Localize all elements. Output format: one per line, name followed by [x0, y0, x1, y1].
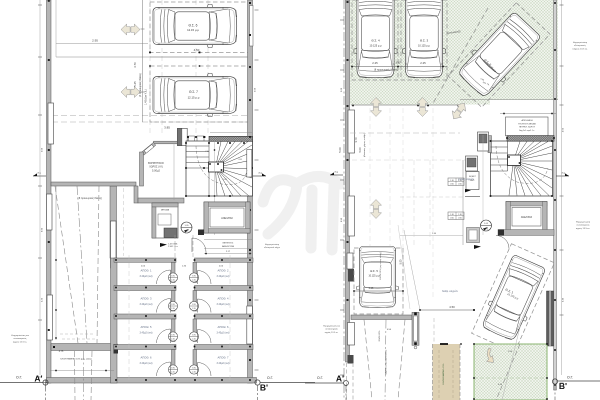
svg-text:ΠΕΤΡΕΛ. ΧΩΡΟΥ: ΠΕΤΡΕΛ. ΧΩΡΟΥ	[519, 127, 536, 129]
svg-text:3.95: 3.95	[171, 304, 175, 306]
svg-text:3.40μ2 (net): 3.40μ2 (net)	[140, 332, 153, 335]
svg-text:5.00: 5.00	[400, 259, 403, 264]
svg-text:3.95: 3.95	[171, 335, 175, 337]
svg-text:3.95: 3.95	[192, 368, 196, 370]
svg-text:0.26: 0.26	[223, 179, 226, 181]
svg-text:12.15 μ.μ: 12.15 μ.μ	[187, 28, 199, 32]
svg-text:2.20: 2.20	[171, 308, 175, 310]
svg-text:3.70: 3.70	[133, 62, 137, 68]
svg-text:2.25: 2.25	[369, 287, 374, 290]
svg-text:4.50: 4.50	[449, 305, 455, 309]
svg-text:(μεγίστη επιτρεπόμενη κλίση): (μεγίστη επιτρεπόμενη κλίση)	[385, 349, 388, 374]
svg-text:2.10/1.74 π.: 2.10/1.74 π.	[168, 246, 179, 248]
svg-text:εξωτερικούς: εξωτερικούς	[574, 44, 586, 47]
svg-text:τοίχους 13.5 εκ.: τοίχους 13.5 εκ.	[572, 47, 588, 50]
svg-text:3.85: 3.85	[164, 126, 170, 130]
svg-text:αρμός 13.5 εκ.: αρμός 13.5 εκ.	[325, 331, 339, 334]
svg-text:Θερμομόνωση: Θερμομόνωση	[265, 243, 280, 246]
svg-text:Θ.Σ. 5: Θ.Σ. 5	[370, 269, 378, 273]
svg-text:Θ.Σ. 4: Θ.Σ. 4	[371, 39, 380, 43]
svg-text:3.40μ2 (net): 3.40μ2 (net)	[217, 275, 230, 278]
svg-text:2.20: 2.20	[171, 280, 175, 282]
svg-text:ΑΠΟΘΗΚΗ: ΑΠΟΘΗΚΗ	[521, 119, 532, 122]
svg-text:ΚΛΙΣΗ 22%: ΚΛΙΣΗ 22%	[379, 331, 381, 342]
svg-text:ΑΠΟΘ. 7: ΑΠΟΘ. 7	[218, 356, 229, 360]
svg-text:ΑΝΕΛ/ΡΑΣ: ΑΝΕΛ/ΡΑΣ	[221, 217, 233, 220]
svg-text:3.83: 3.83	[396, 62, 401, 65]
svg-text:B': B'	[559, 381, 567, 391]
svg-text:3.95: 3.95	[192, 276, 196, 278]
svg-text:ΑΠΟΘ. 6: ΑΠΟΘ. 6	[218, 325, 229, 329]
svg-text:2.20: 2.20	[171, 339, 175, 341]
svg-text:ΚΛΙΣΗ ΡΑΜΠΑΣ 4-5%: ΚΛΙΣΗ ΡΑΜΠΑΣ 4-5%	[442, 364, 445, 385]
svg-text:1.30: 1.30	[450, 180, 454, 182]
svg-text:Ο.Γ.: Ο.Γ.	[567, 376, 573, 380]
svg-text:2.20: 2.20	[192, 339, 196, 341]
svg-text:ΜΗΧ/ΜΑ: ΜΗΧ/ΜΑ	[161, 209, 170, 212]
svg-text:2.20: 2.20	[192, 280, 196, 282]
svg-text:0.60: 0.60	[458, 184, 462, 186]
svg-text:3.40μ2 (net): 3.40μ2 (net)	[140, 362, 153, 365]
svg-text:2.08: 2.08	[238, 159, 241, 161]
svg-text:ΥΠΟΓΕΙΟΥ ΔΕΞΑΜ.: ΥΠΟΓΕΙΟΥ ΔΕΞΑΜ.	[518, 122, 537, 125]
svg-text:(8 προσωρινές θέσεις): (8 προσωρινές θέσεις)	[374, 69, 398, 72]
svg-text:2.95: 2.95	[92, 39, 98, 43]
svg-text:αντισεισμικός: αντισεισμικός	[577, 224, 590, 227]
svg-text:10.125 μ.μ: 10.125 μ.μ	[369, 276, 381, 278]
svg-text:10.125 μ.μ: 10.125 μ.μ	[418, 45, 430, 48]
svg-text:Θερμομόνωση και: Θερμομόνωση και	[323, 325, 340, 328]
svg-text:2.25: 2.25	[372, 61, 378, 65]
svg-text:ΑΝΕΛΚΥΡΑ: ΑΝΕΛΚΥΡΑ	[222, 245, 234, 248]
svg-text:αντισεισμικός: αντισεισμικός	[14, 337, 27, 340]
svg-text:ΧΩΡΟΣ (ΥΛ): ΧΩΡΟΣ (ΥΛ)	[149, 166, 163, 169]
svg-text:ΑΠΟΘ. 5: ΑΠΟΘ. 5	[141, 325, 152, 329]
svg-text:ΑΠΟΘ. 4: ΑΠΟΘ. 4	[218, 297, 229, 301]
svg-text:ΚΛΙΣΗ ΡΑΜΠΑΣ 10% (μεγ. κλίση): ΚΛΙΣΗ ΡΑΜΠΑΣ 10% (μεγ. κλίση)	[60, 358, 92, 361]
svg-text:Θ.Σ. 3: Θ.Σ. 3	[420, 39, 429, 43]
svg-text:B': B'	[260, 383, 268, 393]
svg-text:αρμός 13.5 εκ.: αρμός 13.5 εκ.	[576, 227, 591, 230]
svg-text:ΑΠΟΘ. 1: ΑΠΟΘ. 1	[141, 268, 152, 272]
svg-text:Ο.Γ.: Ο.Γ.	[16, 376, 22, 380]
svg-text:2.20: 2.20	[192, 308, 196, 310]
svg-text:3.95: 3.95	[192, 304, 196, 306]
svg-text:ΑΠΟΘ. 6: ΑΠΟΘ. 6	[141, 356, 152, 360]
svg-text:3.40μ2 (net): 3.40μ2 (net)	[217, 303, 230, 306]
svg-text:εξωτερικοί τοίχοι: εξωτερικοί τοίχοι	[264, 246, 280, 249]
svg-text:Θερμομόνωση: Θερμομόνωση	[573, 41, 588, 44]
svg-text:ΜΕΓΕΘΟΣ: ΜΕΓΕΘΟΣ	[223, 243, 234, 245]
svg-text:4.50: 4.50	[194, 48, 200, 52]
svg-text:1.40 (Δεν Υ.Δ.): 1.40 (Δεν Υ.Δ.)	[145, 89, 148, 105]
svg-text:ΚΛΙΣΗ 10% (μεγ. επιτρ. κλίση): ΚΛΙΣΗ 10% (μεγ. επιτρ. κλίση)	[379, 252, 382, 279]
svg-text:ΑΠΟΘ. 3: ΑΠΟΘ. 3	[141, 297, 152, 301]
svg-text:αντισεισμικός: αντισεισμικός	[325, 328, 337, 331]
svg-text:Θερμομόνωση: Θερμομόνωση	[576, 221, 591, 224]
svg-text:10.125 μ.μ: 10.125 μ.μ	[370, 45, 382, 48]
svg-text:(ιδιωτικός χώρος στάθμ.): (ιδιωτικός χώρος στάθμ.)	[363, 133, 366, 157]
svg-text:Ο.Γ.: Ο.Γ.	[317, 376, 323, 380]
svg-text:3.95: 3.95	[171, 276, 175, 278]
svg-text:1.30: 1.30	[450, 214, 454, 216]
svg-text:3.40μ2 (net): 3.40μ2 (net)	[140, 303, 153, 306]
svg-text:ΑΝΕΛ/ΡΑΣ: ΑΝΕΛ/ΡΑΣ	[521, 216, 533, 219]
svg-text:2.20: 2.20	[171, 372, 175, 374]
svg-text:αρμός 12.5 εκ.: αρμός 12.5 εκ.	[13, 340, 28, 343]
svg-text:Θερμομόνωση και: Θερμομόνωση και	[11, 334, 29, 337]
svg-text:Θ.Σ. 7: Θ.Σ. 7	[189, 90, 198, 94]
svg-text:0.60: 0.60	[450, 184, 454, 186]
svg-text:Δοχ.2x1 περδ. ζ.ν.: Δοχ.2x1 περδ. ζ.ν.	[519, 129, 535, 132]
svg-text:ΑΠΟΘ. 2: ΑΠΟΘ. 2	[218, 268, 229, 272]
svg-text:διαδρ. ελιγμών: διαδρ. ελιγμών	[442, 290, 458, 293]
svg-text:A': A'	[34, 374, 42, 384]
svg-text:3.40μ2 (net): 3.40μ2 (net)	[140, 275, 153, 278]
svg-text:5.00: 5.00	[358, 147, 362, 153]
svg-text:0.60: 0.60	[458, 218, 462, 220]
svg-text:(4 προσωρινές θέσεις): (4 προσωρινές θέσεις)	[139, 73, 142, 97]
svg-text:2.20: 2.20	[192, 372, 196, 374]
svg-text:3.40μ2 (net): 3.40μ2 (net)	[217, 362, 230, 365]
svg-text:5.25: 5.25	[133, 81, 137, 87]
svg-text:3.95: 3.95	[192, 335, 196, 337]
svg-text:1.30: 1.30	[458, 214, 462, 216]
svg-text:3.95: 3.95	[171, 368, 175, 370]
svg-text:7.10: 7.10	[205, 151, 208, 153]
svg-text:χώρος ελιγμών: χώρος ελιγμών	[458, 178, 475, 181]
svg-text:3.40μ2 (net): 3.40μ2 (net)	[217, 332, 230, 335]
svg-text:12.15 μ.μ: 12.15 μ.μ	[188, 96, 200, 100]
svg-text:2.25: 2.25	[420, 61, 426, 65]
svg-text:Ο.Γ.: Ο.Γ.	[267, 376, 273, 380]
svg-text:0.60: 0.60	[450, 218, 454, 220]
svg-text:4.75: 4.75	[59, 351, 64, 353]
svg-text:Θ.Σ. 6: Θ.Σ. 6	[189, 23, 198, 27]
svg-text:5.00μ2: 5.00μ2	[152, 169, 161, 173]
svg-text:(8 προσωρινές θέσεις): (8 προσωρινές θέσεις)	[78, 197, 102, 200]
svg-text:5.00: 5.00	[338, 147, 342, 153]
